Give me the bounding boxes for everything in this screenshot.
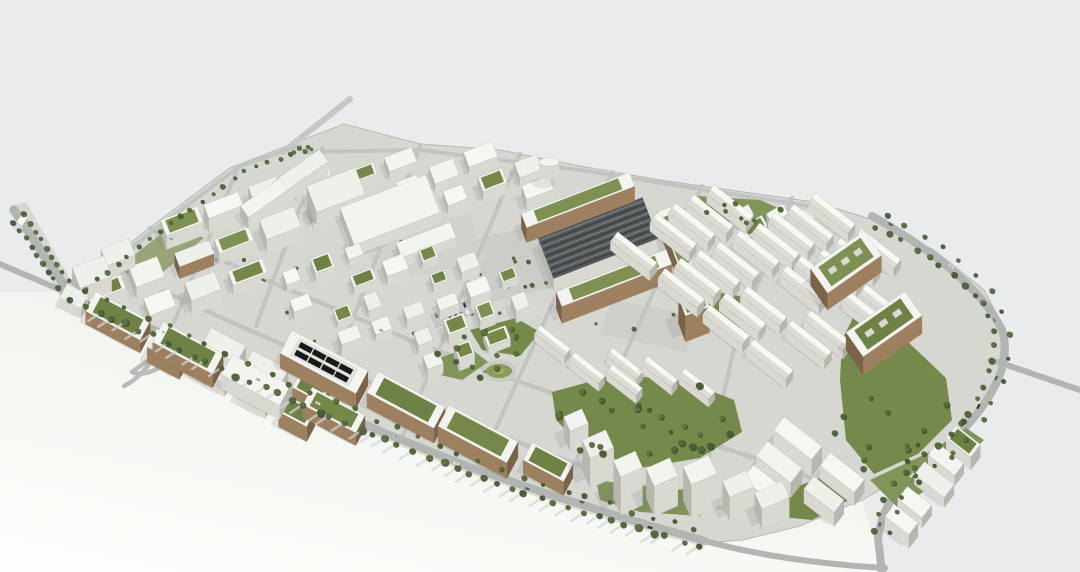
masterplan-aerial-rendering [0,0,1080,572]
viewport [0,0,1080,572]
